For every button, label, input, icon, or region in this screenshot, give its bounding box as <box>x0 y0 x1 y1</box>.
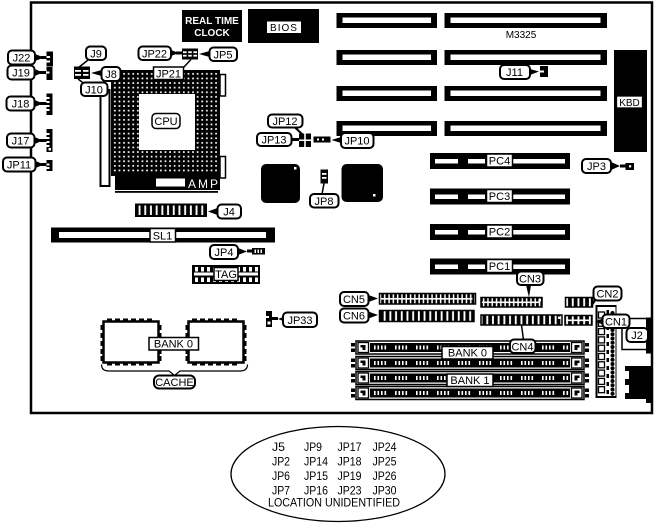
svg-text:JP18: JP18 <box>338 455 362 469</box>
svg-text:JP17: JP17 <box>338 440 362 454</box>
svg-text:JP21: JP21 <box>156 69 181 81</box>
svg-text:JP24: JP24 <box>373 440 397 454</box>
svg-text:JP9: JP9 <box>304 440 322 454</box>
svg-text:JP3: JP3 <box>587 161 606 173</box>
svg-text:J17: J17 <box>12 136 30 148</box>
svg-text:J10: J10 <box>85 85 103 97</box>
svg-text:M3325: M3325 <box>506 30 537 41</box>
svg-text:CLOCK: CLOCK <box>194 28 230 39</box>
svg-text:J11: J11 <box>506 67 523 79</box>
svg-text:CN1: CN1 <box>605 317 627 329</box>
svg-text:PC4: PC4 <box>489 156 510 168</box>
svg-text:J8: J8 <box>105 69 117 81</box>
svg-text:J5: J5 <box>272 440 285 454</box>
svg-text:JP25: JP25 <box>373 455 397 469</box>
svg-text:TAG: TAG <box>215 269 237 281</box>
svg-text:JP10: JP10 <box>344 136 369 148</box>
svg-text:J4: J4 <box>223 207 235 219</box>
svg-text:J22: J22 <box>13 53 31 65</box>
svg-text:JP4: JP4 <box>215 247 234 259</box>
svg-text:KBD: KBD <box>619 98 640 109</box>
svg-text:CPU: CPU <box>154 116 177 128</box>
svg-text:BANK 0: BANK 0 <box>154 339 193 351</box>
svg-text:CACHE: CACHE <box>155 377 194 389</box>
svg-text:JP11: JP11 <box>7 160 31 172</box>
svg-text:JP12: JP12 <box>272 116 297 128</box>
svg-text:JP6: JP6 <box>272 469 290 483</box>
svg-text:PC2: PC2 <box>489 227 510 239</box>
svg-text:JP19: JP19 <box>338 469 362 483</box>
svg-text:J19: J19 <box>12 68 30 80</box>
svg-text:CN5: CN5 <box>343 294 365 306</box>
svg-text:JP14: JP14 <box>304 455 328 469</box>
svg-text:JP2: JP2 <box>272 455 290 469</box>
svg-text:JP15: JP15 <box>304 469 328 483</box>
svg-text:PC1: PC1 <box>489 261 510 273</box>
svg-text:BANK 1: BANK 1 <box>450 375 489 387</box>
svg-text:PC3: PC3 <box>489 191 510 203</box>
svg-text:SL1: SL1 <box>153 231 173 243</box>
svg-text:JP33: JP33 <box>287 315 312 327</box>
svg-text:JP13: JP13 <box>261 135 286 147</box>
svg-text:CN2: CN2 <box>596 289 618 301</box>
svg-text:J2: J2 <box>631 330 643 342</box>
svg-text:LOCATION UNIDENTIFIED: LOCATION UNIDENTIFIED <box>268 496 400 510</box>
svg-text:JP22: JP22 <box>142 49 167 61</box>
svg-text:BIOS: BIOS <box>270 23 298 34</box>
svg-text:CN4: CN4 <box>511 342 533 354</box>
svg-text:AMP: AMP <box>188 177 220 191</box>
svg-text:J9: J9 <box>90 49 102 61</box>
svg-text:CN3: CN3 <box>519 274 541 286</box>
svg-text:REAL TIME: REAL TIME <box>185 16 239 27</box>
svg-text:JP8: JP8 <box>315 196 334 208</box>
svg-text:BANK 0: BANK 0 <box>448 348 487 360</box>
svg-text:J18: J18 <box>12 99 30 111</box>
svg-text:CN6: CN6 <box>343 311 365 323</box>
svg-text:JP5: JP5 <box>214 50 233 62</box>
svg-text:JP26: JP26 <box>373 469 397 483</box>
